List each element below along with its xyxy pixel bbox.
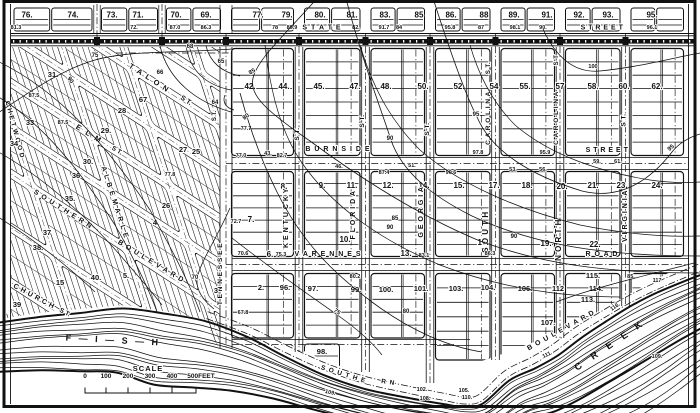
svg-text:92.: 92. xyxy=(573,11,584,20)
svg-text:86.: 86. xyxy=(445,11,456,20)
svg-text:108.: 108. xyxy=(420,396,431,402)
svg-text:34: 34 xyxy=(10,139,19,148)
svg-text:25: 25 xyxy=(192,147,200,156)
svg-text:85: 85 xyxy=(392,216,399,222)
svg-text:95.8: 95.8 xyxy=(445,25,456,31)
svg-text:11.: 11. xyxy=(347,181,358,190)
svg-text:SCALE: SCALE xyxy=(133,364,163,373)
svg-text:101.: 101. xyxy=(414,284,429,293)
svg-text:V A R E N N E S: V A R E N N E S xyxy=(295,251,362,258)
svg-text:98.: 98. xyxy=(317,347,327,356)
svg-text:89.: 89. xyxy=(508,11,519,20)
svg-text:83.: 83. xyxy=(379,11,390,20)
svg-text:98.1: 98.1 xyxy=(510,25,521,31)
svg-text:87: 87 xyxy=(478,25,484,31)
svg-text:13.: 13. xyxy=(400,249,411,258)
svg-text:77.7: 77.7 xyxy=(241,126,252,132)
svg-text:17.: 17. xyxy=(488,181,499,190)
svg-text:69.: 69. xyxy=(200,11,211,20)
svg-text:75.3: 75.3 xyxy=(276,252,287,258)
svg-text:80: 80 xyxy=(403,309,410,315)
svg-text:78: 78 xyxy=(272,25,278,31)
svg-text:S T.: S T. xyxy=(621,113,628,126)
svg-text:70: 70 xyxy=(192,275,199,281)
svg-text:81.: 81. xyxy=(346,11,357,20)
svg-text:107.: 107. xyxy=(541,318,556,327)
svg-text:79.: 79. xyxy=(281,11,292,20)
svg-text:47.: 47. xyxy=(349,82,360,91)
svg-text:115.: 115. xyxy=(586,271,600,280)
svg-text:30.: 30. xyxy=(83,157,93,166)
svg-text:S T.: S T. xyxy=(424,122,431,135)
svg-text:93.: 93. xyxy=(602,11,613,20)
svg-text:S T R E E T: S T R E E T xyxy=(586,147,629,154)
svg-text:97.8: 97.8 xyxy=(473,150,484,156)
svg-text:67.8: 67.8 xyxy=(238,310,249,316)
svg-text:87.0: 87.0 xyxy=(170,25,181,31)
svg-text:20.: 20. xyxy=(556,182,567,191)
svg-text:90: 90 xyxy=(387,136,394,142)
svg-text:81.3: 81.3 xyxy=(11,25,22,31)
svg-text:18.: 18. xyxy=(521,181,532,190)
svg-text:91.7: 91.7 xyxy=(379,25,390,31)
svg-text:S T R E E T: S T R E E T xyxy=(581,25,624,32)
svg-text:6.: 6. xyxy=(267,250,274,259)
svg-text:77.8: 77.8 xyxy=(165,172,176,178)
svg-text:K E N T U C K Y: K E N T U C K Y xyxy=(283,188,290,248)
svg-text:95: 95 xyxy=(473,112,480,118)
svg-text:C A R O L I N A: C A R O L I N A xyxy=(553,91,560,145)
svg-text:87.5: 87.5 xyxy=(29,93,40,99)
svg-text:85: 85 xyxy=(415,11,424,20)
svg-text:87.4: 87.4 xyxy=(379,170,391,176)
svg-text:110.: 110. xyxy=(462,395,473,401)
svg-text:51.: 51. xyxy=(408,163,416,169)
svg-text:95.9: 95.9 xyxy=(540,150,551,156)
svg-text:68: 68 xyxy=(187,44,194,50)
svg-text:54: 54 xyxy=(490,82,499,91)
svg-text:56.: 56. xyxy=(539,167,547,173)
svg-text:S O U T H: S O U T H xyxy=(481,211,490,252)
svg-text:65: 65 xyxy=(218,59,225,65)
svg-text:500FEET: 500FEET xyxy=(187,373,214,380)
svg-text:39: 39 xyxy=(13,300,21,309)
svg-text:58.: 58. xyxy=(587,82,598,91)
svg-text:S T.: S T. xyxy=(212,111,218,122)
svg-text:37: 37 xyxy=(43,228,51,237)
svg-text:103.: 103. xyxy=(449,284,464,293)
svg-text:109.: 109. xyxy=(652,354,663,360)
svg-text:F L O R I D A: F L O R I D A xyxy=(350,191,357,240)
svg-text:2.: 2. xyxy=(258,283,264,292)
svg-text:28: 28 xyxy=(118,106,126,115)
svg-text:77.0: 77.0 xyxy=(236,153,247,159)
svg-text:57: 57 xyxy=(556,82,565,91)
svg-text:53.: 53. xyxy=(509,167,517,173)
svg-text:82.7: 82.7 xyxy=(277,153,288,159)
svg-text:B U R N S I D E: B U R N S I D E xyxy=(305,146,370,153)
svg-text:N O R T H: N O R T H xyxy=(554,219,563,261)
svg-text:67: 67 xyxy=(139,95,147,104)
svg-text:84: 84 xyxy=(396,25,403,31)
svg-text:50.: 50. xyxy=(417,82,428,91)
svg-text:0: 0 xyxy=(83,373,87,380)
svg-text:117: 117 xyxy=(653,278,662,284)
svg-text:72.7: 72.7 xyxy=(231,219,242,225)
svg-text:S T: S T xyxy=(554,55,560,66)
svg-text:26: 26 xyxy=(162,201,170,210)
svg-text:35.: 35. xyxy=(65,194,75,203)
svg-text:44.: 44. xyxy=(278,82,289,91)
svg-text:24.: 24. xyxy=(651,181,662,190)
svg-text:86.3: 86.3 xyxy=(201,25,212,31)
svg-text:73.: 73. xyxy=(106,11,117,20)
svg-text:62.: 62. xyxy=(651,82,662,91)
svg-text:96.1: 96.1 xyxy=(647,25,658,31)
svg-text:112: 112 xyxy=(552,284,564,293)
svg-text:27: 27 xyxy=(179,145,187,154)
svg-text:74.: 74. xyxy=(67,11,78,20)
svg-text:29.: 29. xyxy=(101,126,111,135)
svg-text:90: 90 xyxy=(511,234,518,240)
svg-text:100: 100 xyxy=(101,373,112,380)
svg-text:10.: 10. xyxy=(339,235,350,244)
svg-text:80.: 80. xyxy=(314,11,325,20)
svg-text:75: 75 xyxy=(92,53,99,59)
svg-text:S T.: S T. xyxy=(359,114,366,127)
svg-text:43.: 43. xyxy=(264,151,272,157)
svg-text:V I R G I N I A: V I R G I N I A xyxy=(622,190,629,242)
svg-text:100.: 100. xyxy=(379,285,394,294)
svg-text:15: 15 xyxy=(56,278,64,287)
svg-text:61.: 61. xyxy=(614,159,622,165)
svg-text:60.: 60. xyxy=(618,82,629,91)
svg-text:12.: 12. xyxy=(382,181,393,190)
svg-text:52.: 52. xyxy=(453,82,464,91)
svg-text:T E N N E S S E E: T E N N E S S E E xyxy=(217,243,224,305)
svg-text:45.: 45. xyxy=(313,82,324,91)
svg-text:100: 100 xyxy=(588,64,597,70)
svg-text:15.: 15. xyxy=(453,181,464,190)
svg-text:86.3: 86.3 xyxy=(485,251,496,257)
svg-text:80.2: 80.2 xyxy=(350,274,361,280)
svg-text:87.5: 87.5 xyxy=(58,120,69,126)
svg-text:64: 64 xyxy=(212,100,219,106)
svg-text:88: 88 xyxy=(480,11,489,20)
svg-text:7.: 7. xyxy=(248,215,255,224)
svg-text:400: 400 xyxy=(167,373,178,380)
svg-text:66: 66 xyxy=(157,70,164,76)
svg-text:S T A T E: S T A T E xyxy=(302,25,341,32)
svg-text:3: 3 xyxy=(214,286,218,295)
svg-text:102.: 102. xyxy=(417,387,428,393)
svg-text:55.: 55. xyxy=(519,82,530,91)
svg-text:76.: 76. xyxy=(21,11,32,20)
svg-text:5.: 5. xyxy=(123,271,129,280)
svg-text:77.: 77. xyxy=(252,11,263,20)
svg-text:70.6: 70.6 xyxy=(238,251,249,257)
svg-text:31.: 31. xyxy=(48,70,58,79)
svg-text:40.: 40. xyxy=(91,273,101,282)
svg-text:48.: 48. xyxy=(380,82,391,91)
svg-text:22.: 22. xyxy=(589,240,600,249)
svg-text:70.: 70. xyxy=(170,11,181,20)
svg-text:96.: 96. xyxy=(280,283,290,292)
svg-text:200: 200 xyxy=(123,373,134,380)
svg-text:97.: 97. xyxy=(308,284,318,293)
svg-text:S T.: S T. xyxy=(486,62,492,74)
svg-text:21.: 21. xyxy=(587,181,598,190)
svg-text:71.: 71. xyxy=(132,11,143,20)
svg-text:46.: 46. xyxy=(335,164,343,170)
svg-text:72.: 72. xyxy=(130,25,138,31)
svg-text:104.: 104. xyxy=(481,283,496,292)
svg-text:95.: 95. xyxy=(646,11,657,20)
svg-text:300: 300 xyxy=(145,373,156,380)
svg-text:105.: 105. xyxy=(459,388,470,394)
svg-text:91.: 91. xyxy=(541,11,552,20)
svg-text:90: 90 xyxy=(387,225,394,231)
svg-text:59.: 59. xyxy=(593,159,601,165)
svg-text:36: 36 xyxy=(72,171,80,180)
